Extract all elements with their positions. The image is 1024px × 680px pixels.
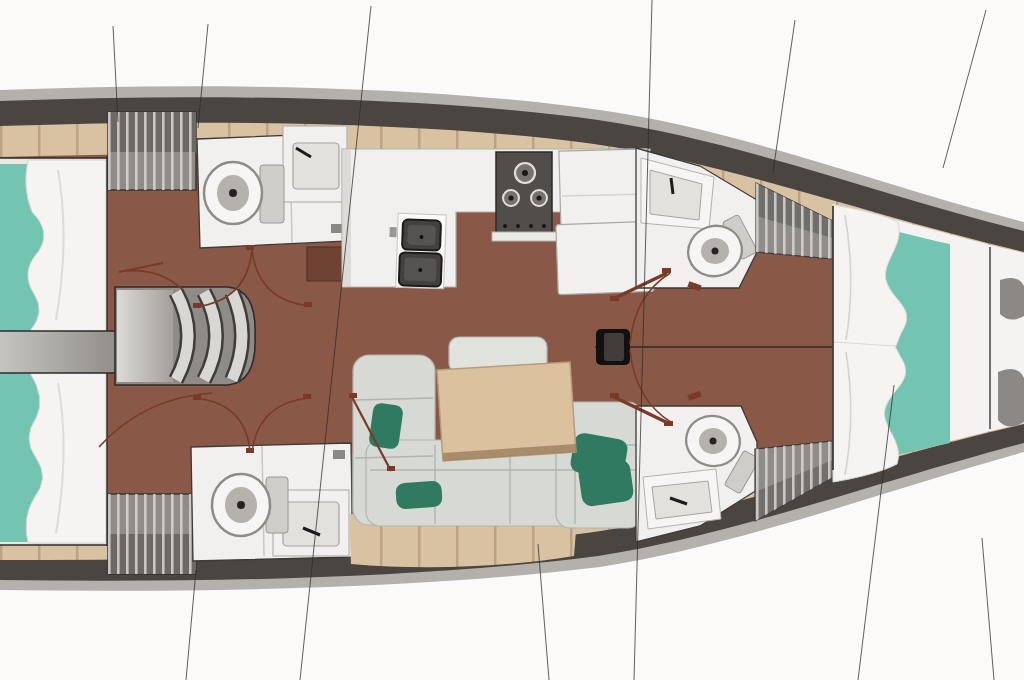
companionway-stairs	[115, 287, 255, 385]
locker-aft-bottom	[108, 494, 196, 574]
drain-icon	[333, 450, 345, 459]
head-aft-top	[197, 126, 349, 248]
throw-pillow	[395, 480, 443, 509]
salon-table	[437, 362, 576, 461]
stove	[492, 152, 560, 241]
yacht-floor-plan	[0, 0, 1024, 680]
mast-step	[596, 329, 630, 365]
throw-pillow	[577, 459, 634, 508]
aft-cabin-bottom	[0, 372, 107, 545]
faucet-icon	[389, 227, 396, 237]
faucet-icon	[671, 178, 673, 194]
locker-aft-top	[108, 112, 196, 190]
head-aft-bottom	[191, 443, 353, 561]
aft-corridor	[0, 331, 118, 373]
drain-icon	[331, 224, 342, 233]
aft-cabin-top	[0, 158, 107, 332]
throw-pillow	[368, 402, 404, 450]
sink-basin	[283, 502, 339, 546]
toilet-cistern	[260, 165, 284, 223]
